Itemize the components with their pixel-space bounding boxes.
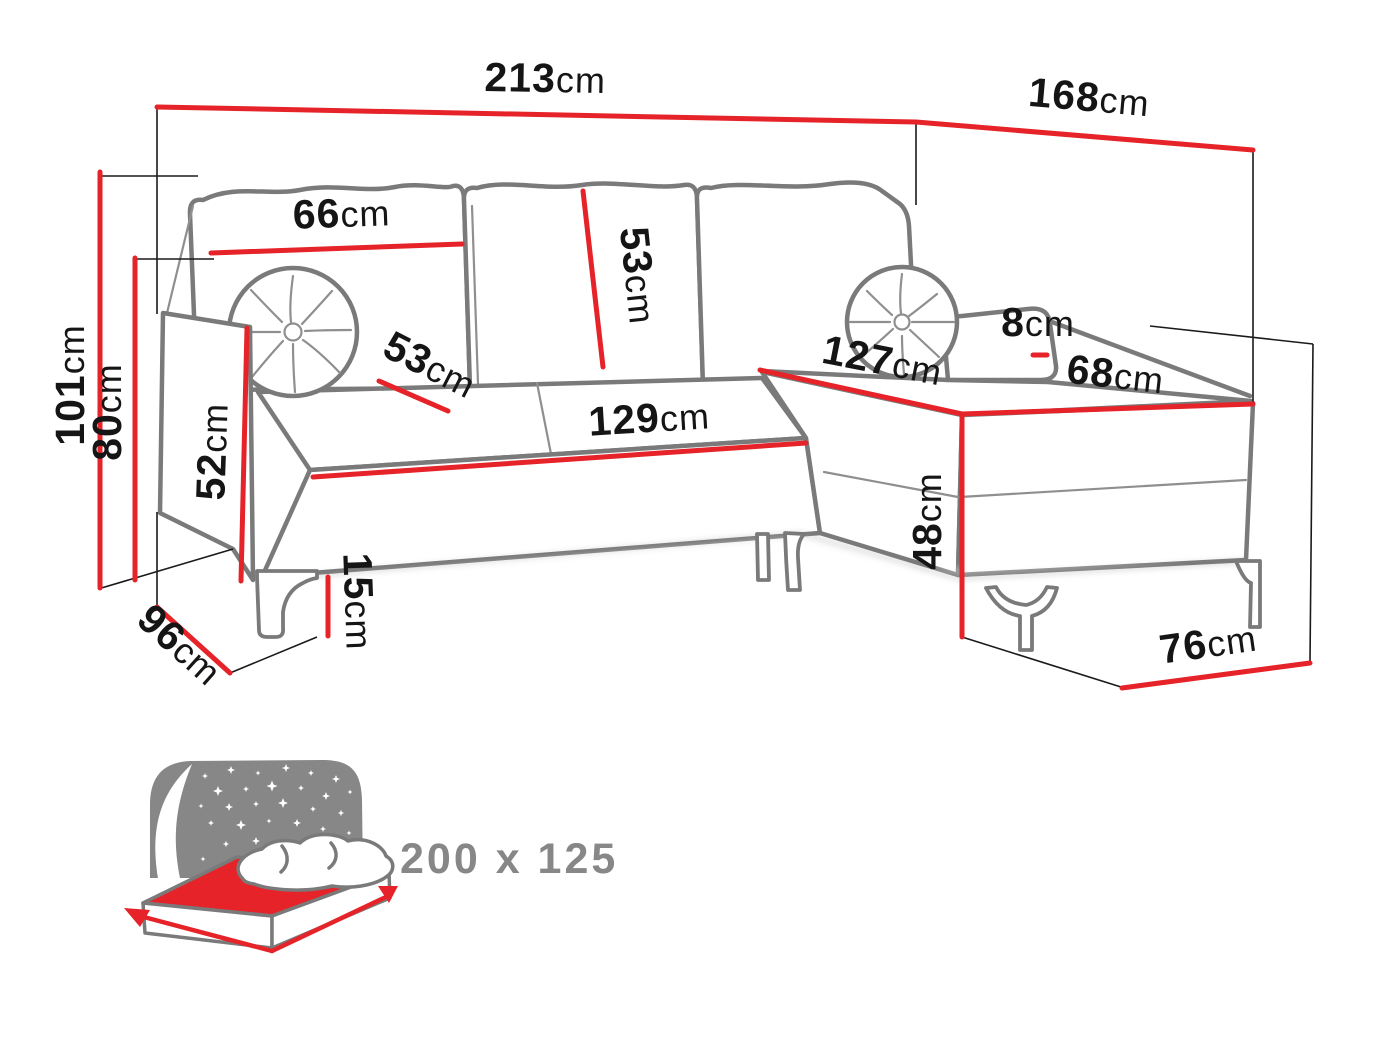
dim-unit: cm: [193, 402, 236, 453]
sleeping-size-label: 200 x 125: [400, 835, 618, 883]
leg-chaise-right: [1236, 561, 1260, 627]
dim-unit: cm: [556, 59, 607, 101]
dim-value: 48: [904, 522, 950, 570]
dim-unit: cm: [1204, 618, 1259, 666]
extension-line: [98, 549, 233, 589]
dim-value: 129: [587, 394, 661, 444]
extension-line: [230, 637, 317, 673]
dim-value: 52: [187, 452, 235, 501]
dim-label-total-depth: 168cm: [1027, 69, 1152, 125]
dim-value: 213: [484, 54, 556, 101]
dim-label-leg-height: 15cm: [334, 552, 383, 651]
dim-unit: cm: [340, 192, 391, 235]
dim-label-seat-width: 129cm: [587, 391, 711, 444]
dim-unit: cm: [908, 472, 949, 522]
dim-value: 8: [1001, 299, 1025, 345]
corner-sofa-dimension-diagram: 213cm 168cm 101cm 80cm 52cm 66cm 53cm 53…: [0, 0, 1383, 1037]
extension-line: [1310, 344, 1313, 661]
dim-value: 53: [611, 225, 662, 277]
dim-unit: cm: [659, 395, 711, 439]
dim-unit: cm: [617, 272, 663, 326]
leg-middle-a: [757, 534, 769, 580]
dim-label-armrest-height: 52cm: [187, 402, 236, 501]
dim-unit: cm: [337, 600, 380, 651]
dim-label-side-depth: 96cm: [129, 595, 232, 694]
dim-label-armrest-pad-height: 8cm: [1001, 299, 1075, 345]
leg-chaise-front: [986, 587, 1057, 650]
dim-line-total-width: [157, 107, 916, 122]
dim-label-chaise-end-width: 76cm: [1157, 614, 1260, 673]
dim-unit: cm: [51, 324, 92, 374]
dim-value: 68: [1064, 346, 1117, 397]
dim-line-total-depth: [916, 122, 1253, 150]
dim-unit: cm: [1025, 303, 1075, 344]
dim-unit: cm: [88, 363, 129, 413]
extension-line: [962, 637, 1121, 687]
dim-label-base-height: 48cm: [904, 472, 950, 570]
leg-front-left: [257, 571, 317, 637]
dim-value: 66: [292, 190, 341, 238]
extension-line: [1150, 326, 1313, 344]
dim-label-back-cushion-width: 66cm: [292, 188, 391, 237]
dim-unit: cm: [1098, 79, 1151, 124]
dim-label-total-width: 213cm: [484, 54, 606, 102]
dim-value: 15: [334, 552, 382, 601]
dim-label-backrest-height: 80cm: [84, 363, 130, 461]
sleeping-function-icon: 200 x 125: [124, 760, 618, 951]
dim-value: 168: [1027, 69, 1102, 121]
dim-value: 76: [1157, 621, 1211, 673]
dim-unit: cm: [1112, 355, 1166, 401]
dim-value: 80: [84, 413, 130, 461]
sofa-sketch: [160, 183, 1260, 650]
dimension-diagram-page: 213cm 168cm 101cm 80cm 52cm 66cm 53cm 53…: [0, 0, 1383, 1037]
dim-line-chaise-end-width: [1122, 663, 1310, 688]
